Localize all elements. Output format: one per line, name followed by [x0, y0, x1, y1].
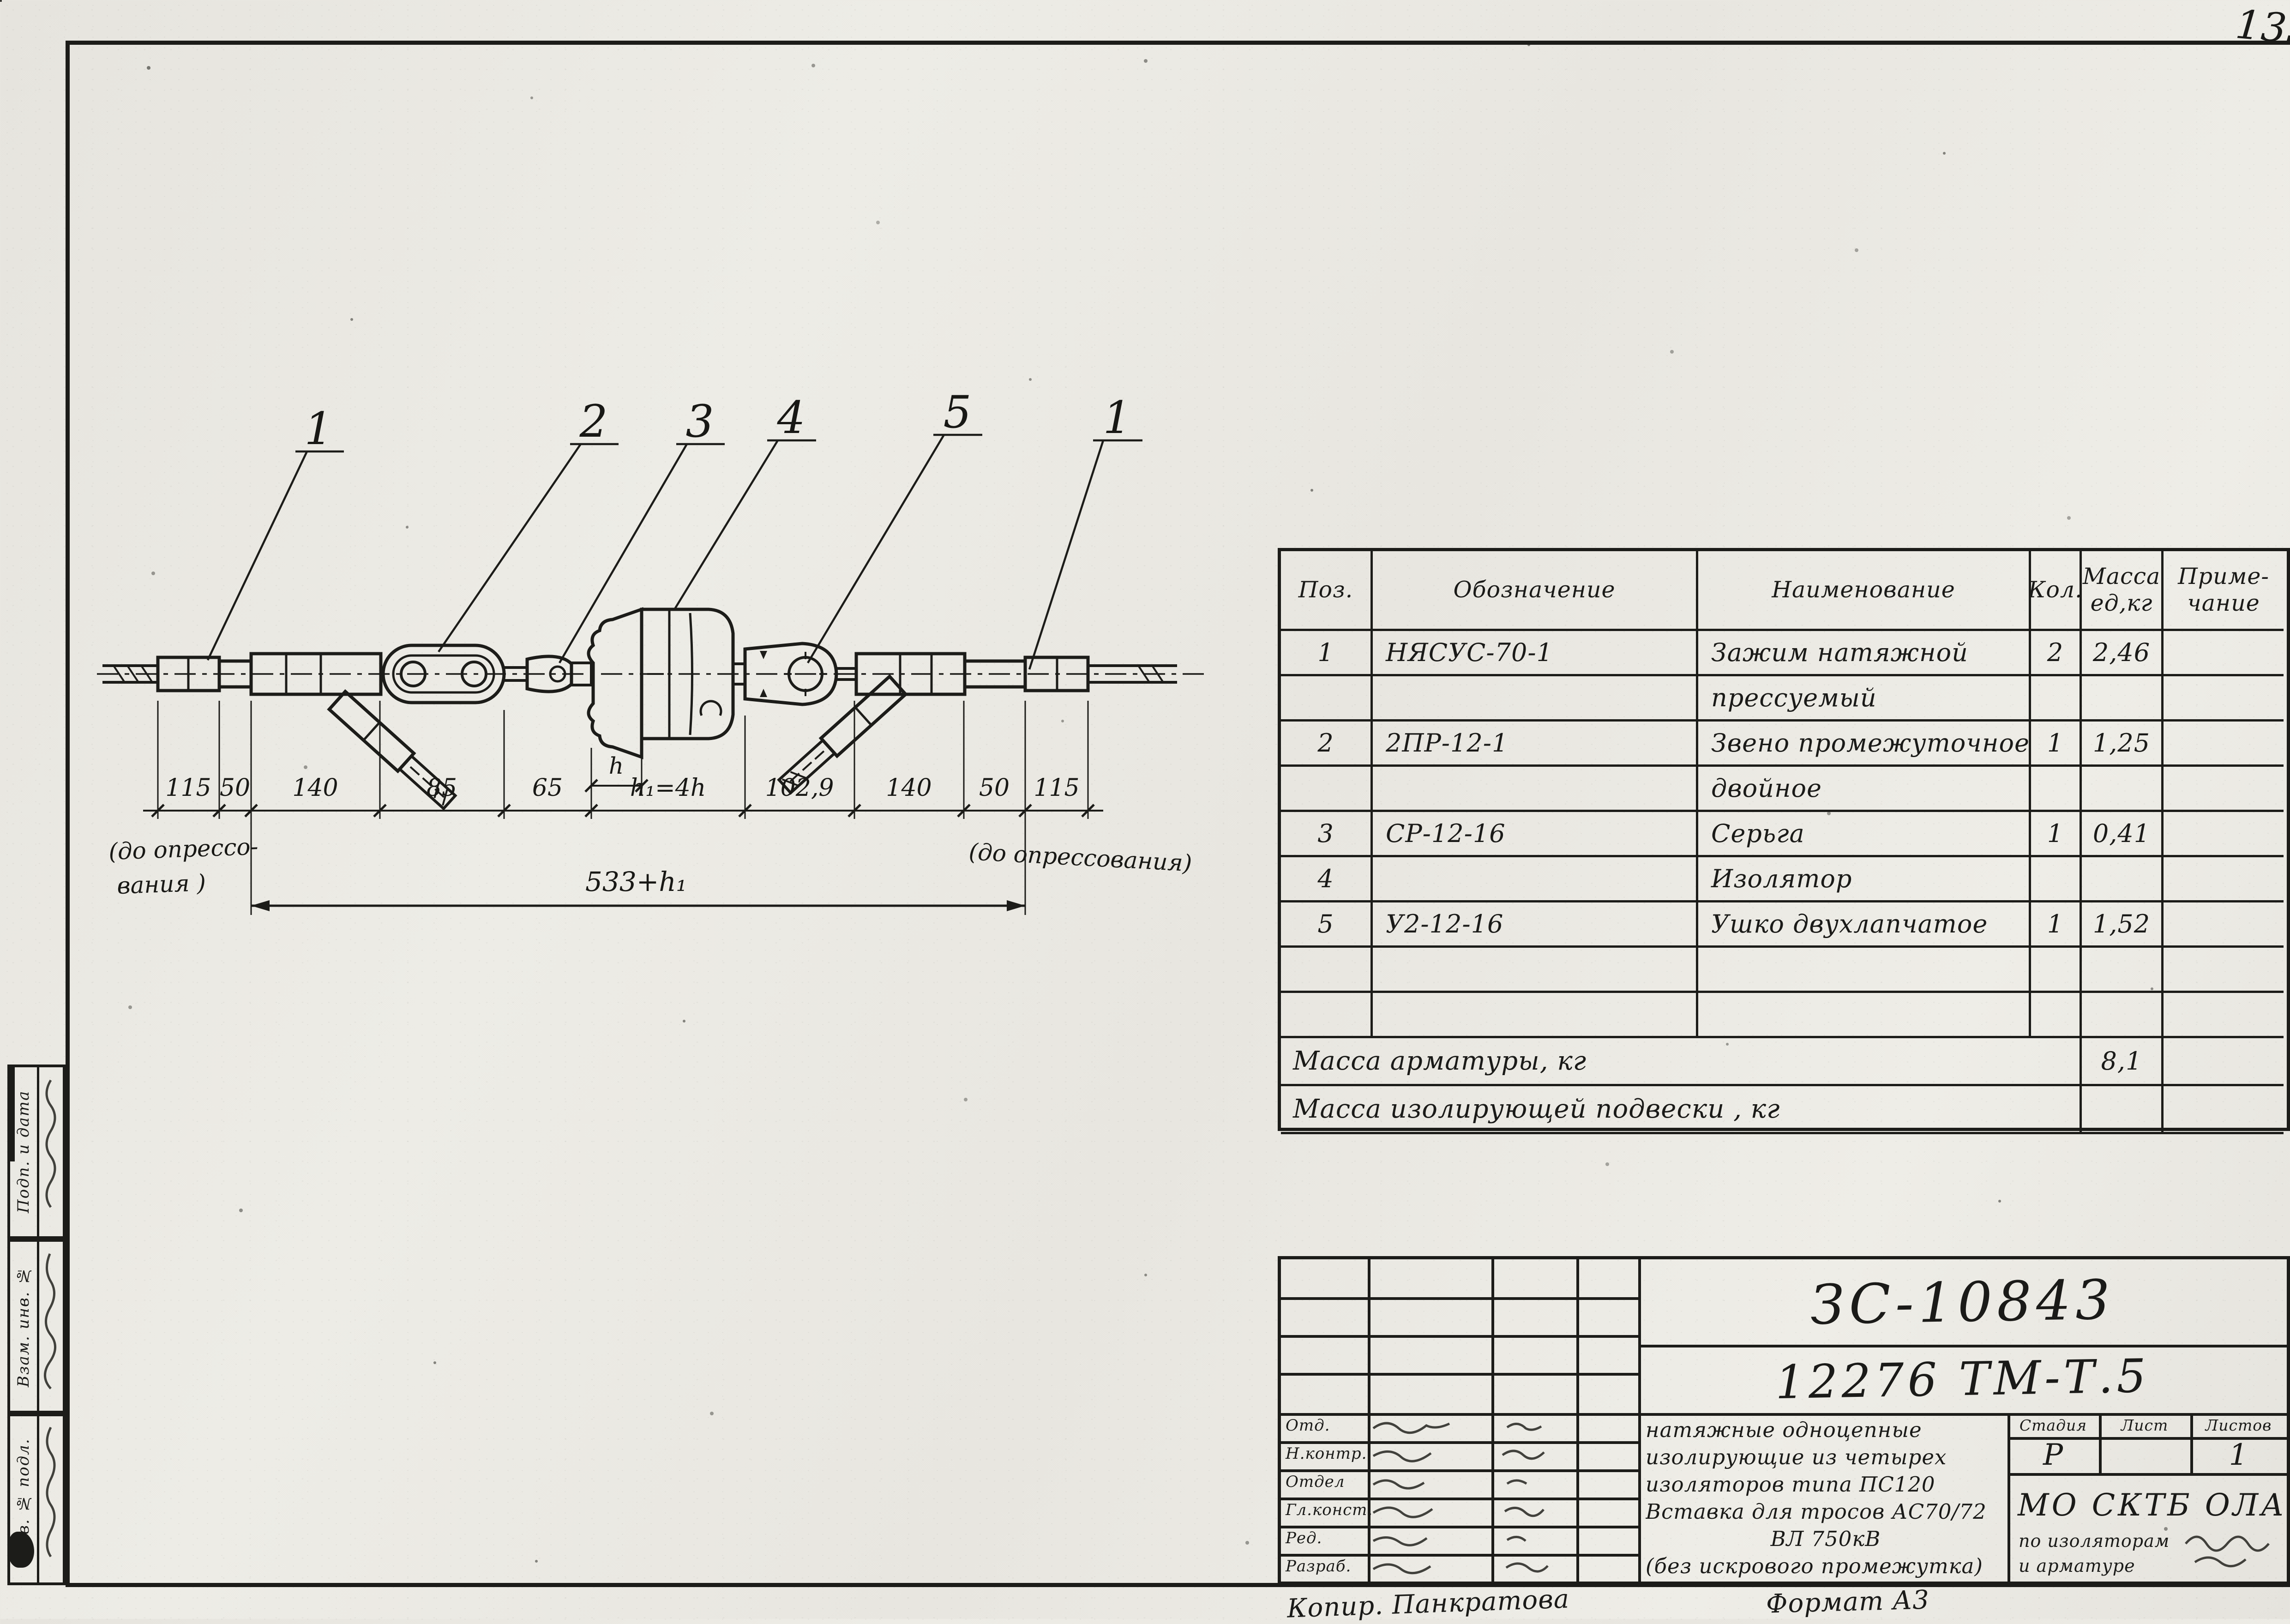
summary-fittings-mass-value: 8,1 — [2082, 1038, 2164, 1086]
summary-string-mass-value — [2082, 1086, 2164, 1134]
row-pos: 2 — [1281, 722, 1373, 767]
callout-1-right: 1 — [1103, 392, 1131, 444]
margin-cell-repl-inv: Взам. инв. № — [7, 1239, 66, 1413]
organisation-signature-scribble — [2181, 1525, 2283, 1576]
sign-role-1: Отд. — [1286, 1416, 1330, 1435]
sheets-header: Листов — [2190, 1413, 2287, 1437]
assembly-drawing: 1 2 3 4 5 1 115 50 140 85 65 h₁=4h 102,9… — [69, 392, 1246, 969]
row-qty — [2031, 948, 2082, 993]
organisation-name: МО СКТБ ОЛА — [2018, 1487, 2287, 1523]
row-mass — [2082, 857, 2164, 902]
dim-50-left: 50 — [220, 774, 250, 802]
row-name: Звено промежуточное — [1698, 722, 2031, 767]
description-line: изолирующие из четырех — [1646, 1444, 2006, 1471]
row-name — [1698, 948, 2031, 993]
row-designation: СР-12-16 — [1373, 812, 1698, 857]
dim-102-9: 102,9 — [765, 774, 834, 802]
row-qty — [2031, 993, 2082, 1038]
col-header-name: Наименование — [1698, 551, 2031, 631]
stage-header: Стадия — [2008, 1413, 2099, 1437]
row-mass: 1,52 — [2082, 902, 2164, 948]
row-qty: 2 — [2031, 631, 2082, 676]
margin-scribble — [38, 1420, 64, 1582]
document-number: ЗС-10843 — [1637, 1254, 2287, 1350]
assembly-description: натяжные одноцепные изолирующие из четыр… — [1646, 1416, 2006, 1581]
dim-total-label: 533+h₁ — [585, 866, 687, 897]
dim-85: 85 — [427, 774, 457, 802]
grid-line — [2008, 1473, 2287, 1476]
row-designation: 2ПР-12-1 — [1373, 722, 1698, 767]
row-designation: У2-12-16 — [1373, 902, 1698, 948]
row-name: Зажим натяжной — [1698, 631, 2031, 676]
scanned-technical-drawing: { "colors": { "ink": "#1c1c19", "paper":… — [0, 0, 2290, 1619]
dim-50-right: 50 — [979, 774, 1010, 802]
row-qty — [2031, 676, 2082, 722]
row-note — [2164, 902, 2284, 948]
row-qty — [2031, 857, 2082, 902]
sheet-header: Лист — [2099, 1413, 2190, 1437]
row-mass: 0,41 — [2082, 812, 2164, 857]
grid-line — [1281, 1373, 1638, 1376]
format-note: Формат А3 — [1766, 1585, 1929, 1619]
row-designation: НЯСУС-70-1 — [1373, 631, 1698, 676]
organisation-dept-line2: и арматуре — [2019, 1556, 2135, 1576]
frame-top-line — [66, 41, 2290, 45]
row-designation — [1373, 948, 1698, 993]
row-mass: 1,25 — [2082, 722, 2164, 767]
row-note — [2164, 631, 2284, 676]
description-line: натяжные одноцепные — [1646, 1416, 2006, 1444]
margin-cell-sign-date: Подп. и дата — [7, 1065, 66, 1239]
row-name: Изолятор — [1698, 857, 2031, 902]
row-name: прессуемый — [1698, 676, 2031, 722]
callout-5: 5 — [943, 386, 971, 438]
row-mass — [2082, 767, 2164, 812]
row-mass — [2082, 948, 2164, 993]
parts-list-table: Поз. Обозначение Наименование Кол. Масса… — [1278, 548, 2290, 1131]
callout-4: 4 — [776, 392, 805, 444]
row-designation — [1373, 993, 1698, 1038]
margin-cell-inv-orig: Инв. № подл. — [7, 1413, 66, 1585]
row-pos — [1281, 948, 1373, 993]
scan-noise-specks — [0, 0, 2, 2]
summary-string-mass-note — [2164, 1086, 2284, 1134]
row-pos — [1281, 676, 1373, 722]
row-qty — [2031, 767, 2082, 812]
col-header-qty: Кол. — [2031, 551, 2082, 631]
summary-fittings-mass-label: Масса арматуры, кг — [1281, 1038, 2082, 1086]
dimension-h: h — [585, 752, 648, 792]
callout-2: 2 — [579, 396, 607, 447]
dim-115-left: 115 — [165, 774, 211, 802]
organisation-cell: МО СКТБ ОЛА по изоляторам и арматуре — [2015, 1481, 2287, 1582]
row-note — [2164, 767, 2284, 812]
row-note — [2164, 993, 2284, 1038]
row-designation — [1373, 676, 1698, 722]
grid-line — [1281, 1297, 1638, 1300]
row-mass: 2,46 — [2082, 631, 2164, 676]
dimension-chain: 115 50 140 85 65 h₁=4h 102,9 140 50 115 — [143, 774, 1103, 817]
scan-smudge — [7, 1065, 15, 1161]
row-pos — [1281, 767, 1373, 812]
dim-140-right: 140 — [886, 774, 932, 802]
margin-scribble — [38, 1071, 64, 1237]
margin-label-repl-inv: Взам. инв. № — [10, 1242, 37, 1411]
copier-note: Копир. Панкратова — [1286, 1584, 1570, 1624]
row-pos: 4 — [1281, 857, 1373, 902]
row-note — [2164, 676, 2284, 722]
signature-scribbles — [1369, 1414, 1636, 1581]
dim-115-right: 115 — [1034, 774, 1079, 802]
row-mass — [2082, 676, 2164, 722]
twin-link — [383, 645, 504, 703]
row-name: двойное — [1698, 767, 2031, 812]
row-pos: 3 — [1281, 812, 1373, 857]
row-qty: 1 — [2031, 812, 2082, 857]
col-header-mass: Массаед,кг — [2082, 551, 2164, 631]
dimension-total: 533+h₁ — [251, 866, 1025, 911]
document-code: 12276 ТМ-Т.5 — [1638, 1339, 2287, 1419]
title-block: ЗС-10843 12276 ТМ-Т.5 Отд. Н.контр. Отде… — [1278, 1256, 2290, 1585]
row-mass — [2082, 993, 2164, 1038]
sign-role-4: Гл.конст. — [1286, 1501, 1373, 1519]
description-line: изоляторов типа ПС120 — [1646, 1471, 2006, 1498]
row-designation — [1373, 857, 1698, 902]
callout-3: 3 — [685, 396, 714, 447]
insulator — [589, 609, 745, 757]
row-pos — [1281, 993, 1373, 1038]
row-name: Серьга — [1698, 812, 2031, 857]
callout-leaders — [208, 435, 1142, 669]
summary-string-mass-label: Масса изолирующей подвески , кг — [1281, 1086, 2082, 1134]
note-left-line1: (до опрессо- — [108, 833, 258, 865]
row-pos: 1 — [1281, 631, 1373, 676]
description-line: Вставка для тросов АС70/72 — [1646, 1498, 2006, 1525]
callout-1-left: 1 — [304, 403, 332, 455]
dim-h-label: h — [609, 752, 624, 779]
description-line: ВЛ 750кВ — [1646, 1525, 2006, 1552]
row-note — [2164, 812, 2284, 857]
row-note — [2164, 857, 2284, 902]
margin-scribble — [38, 1245, 64, 1412]
sign-role-3: Отдел — [1286, 1473, 1345, 1491]
note-right: (до опрессования) — [968, 838, 1192, 877]
row-pos: 5 — [1281, 902, 1373, 948]
sheets-value: 1 — [2190, 1437, 2287, 1473]
dim-h1-4h: h₁=4h — [630, 774, 706, 802]
row-name — [1698, 993, 2031, 1038]
col-header-pos: Поз. — [1281, 551, 1373, 631]
col-header-designation: Обозначение — [1373, 551, 1698, 631]
description-line: (без искрового промежутка) — [1646, 1552, 2006, 1580]
row-designation — [1373, 767, 1698, 812]
row-qty: 1 — [2031, 722, 2082, 767]
sign-role-6: Разраб. — [1286, 1557, 1351, 1576]
note-left-line2: вания ) — [116, 869, 206, 899]
grid-line — [1281, 1335, 1638, 1338]
dim-140-left: 140 — [292, 774, 338, 802]
corner-page-number: 135 — [2234, 1, 2290, 54]
row-qty: 1 — [2031, 902, 2082, 948]
sign-role-2: Н.контр. — [1286, 1444, 1367, 1463]
dim-65: 65 — [532, 774, 563, 802]
row-note — [2164, 722, 2284, 767]
col-header-note: Приме-чание — [2164, 551, 2284, 631]
sheet-value — [2099, 1437, 2190, 1473]
summary-fittings-mass-note — [2164, 1038, 2284, 1086]
organisation-dept-line1: по изоляторам — [2019, 1531, 2170, 1551]
row-name: Ушко двухлапчатое — [1698, 902, 2031, 948]
row-note — [2164, 948, 2284, 993]
stage-value: Р — [2008, 1437, 2099, 1473]
sign-role-5: Ред. — [1286, 1529, 1322, 1547]
